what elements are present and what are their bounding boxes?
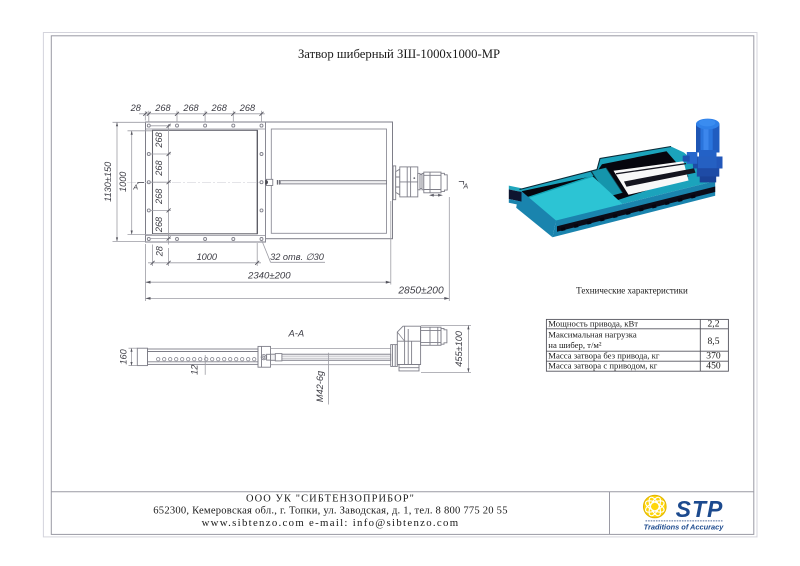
svg-text:Traditions of Accuracy: Traditions of Accuracy: [644, 523, 725, 532]
svg-text:Масса затвора с приводом, кг: Масса затвора с приводом, кг: [548, 361, 658, 371]
svg-text:2850±200: 2850±200: [397, 286, 444, 297]
svg-text:Масса затвора без привода, кг: Масса затвора без привода, кг: [548, 351, 660, 361]
svg-text:268: 268: [154, 103, 171, 113]
svg-text:Мощность привода, кВт: Мощность привода, кВт: [548, 318, 638, 328]
svg-text:455±100: 455±100: [454, 330, 464, 367]
svg-text:www.sibtenzo.com e-mail: info@: www.sibtenzo.com e-mail: info@sibtenzo.c…: [202, 517, 460, 529]
svg-text:28: 28: [130, 103, 142, 113]
svg-text:12: 12: [189, 365, 199, 375]
svg-text:А: А: [132, 182, 138, 191]
svg-text:1000: 1000: [118, 171, 128, 192]
svg-text:32 отв. ∅30: 32 отв. ∅30: [270, 252, 325, 262]
svg-text:Максимальная нагрузка: Максимальная нагрузка: [548, 329, 637, 339]
svg-text:2,2: 2,2: [708, 319, 720, 330]
svg-text:160: 160: [118, 348, 128, 364]
svg-text:268: 268: [154, 131, 164, 148]
svg-text:28: 28: [155, 245, 165, 257]
svg-text:268: 268: [211, 103, 228, 113]
svg-text:268: 268: [154, 160, 164, 177]
svg-text:2340±200: 2340±200: [247, 271, 291, 282]
svg-text:268: 268: [182, 103, 199, 113]
svg-text:Затвор шиберный ЗШ-1000x1000-М: Затвор шиберный ЗШ-1000x1000-МР: [298, 47, 500, 61]
svg-text:268: 268: [239, 103, 256, 113]
svg-text:1000: 1000: [197, 252, 218, 262]
svg-text:1130±150: 1130±150: [103, 161, 113, 202]
svg-text:ООО УК "СИБТЕНЗОПРИБОР": ООО УК "СИБТЕНЗОПРИБОР": [246, 493, 415, 504]
svg-text:450: 450: [706, 361, 721, 372]
svg-text:268: 268: [154, 216, 164, 233]
svg-text:на шибер, т/м²: на шибер, т/м²: [548, 340, 602, 350]
svg-text:268: 268: [154, 188, 164, 205]
svg-text:652300, Кемеровская обл., г. Т: 652300, Кемеровская обл., г. Топки, ул. …: [153, 506, 507, 517]
svg-text:8,5: 8,5: [708, 336, 720, 347]
svg-text:М42-6g: М42-6g: [315, 370, 325, 402]
svg-text:STP: STP: [676, 496, 724, 522]
svg-text:А-А: А-А: [287, 328, 304, 339]
svg-text:Технические характеристики: Технические характеристики: [576, 285, 688, 295]
svg-text:А: А: [462, 182, 468, 191]
